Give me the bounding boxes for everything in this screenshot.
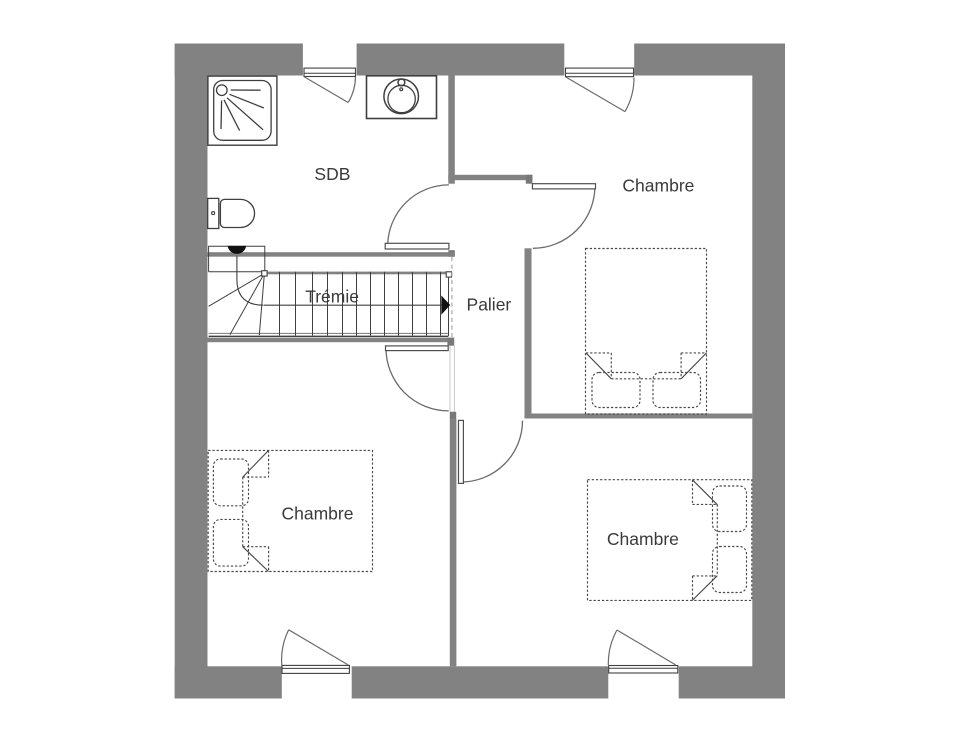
svg-text:Chambre: Chambre: [622, 175, 694, 195]
svg-text:Trémie: Trémie: [305, 287, 359, 307]
svg-text:Palier: Palier: [467, 295, 512, 315]
svg-text:SDB: SDB: [314, 164, 350, 184]
svg-text:Chambre: Chambre: [282, 503, 354, 523]
svg-text:Chambre: Chambre: [607, 529, 679, 549]
